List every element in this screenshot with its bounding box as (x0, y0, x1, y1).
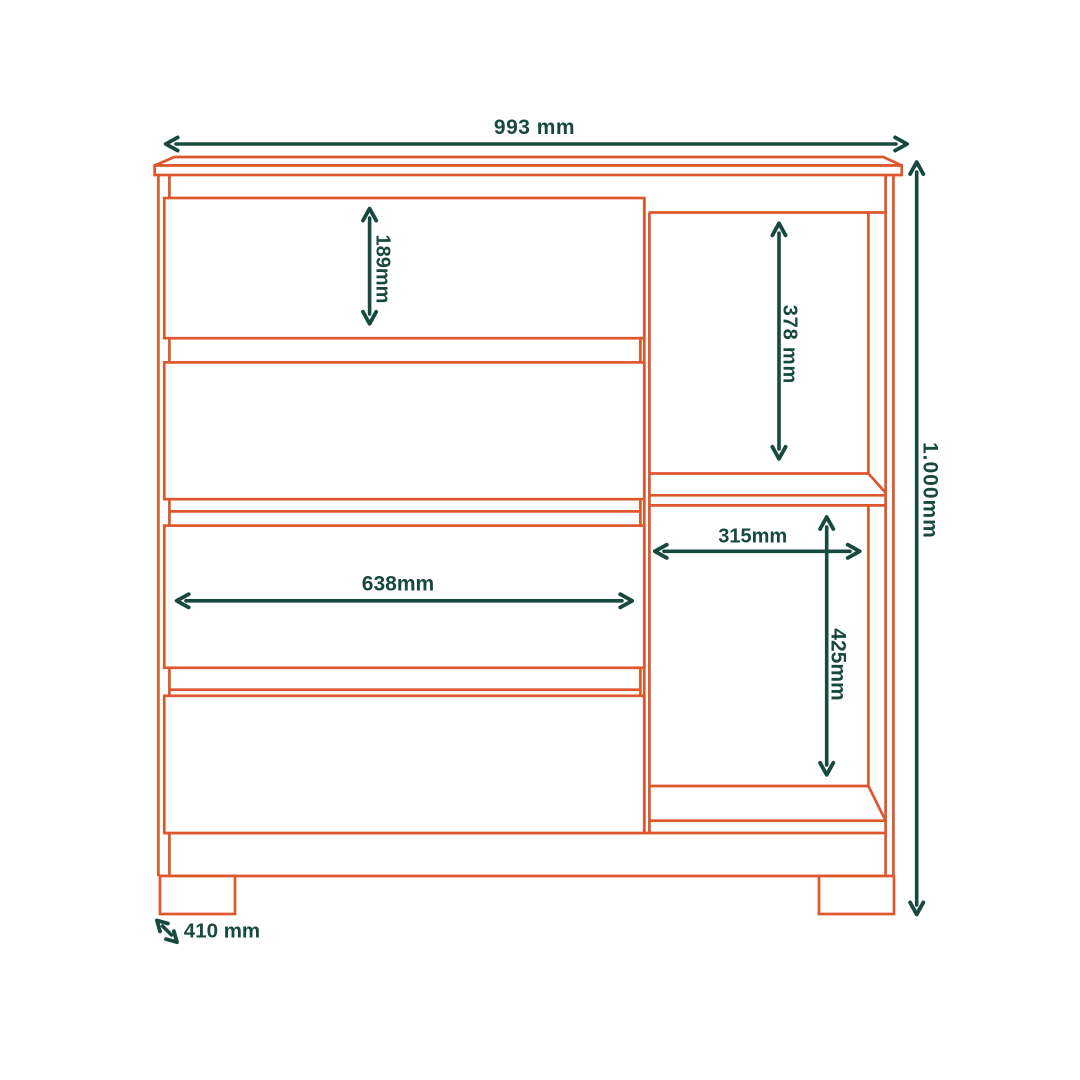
svg-text:410 mm: 410 mm (184, 920, 260, 943)
svg-text:993 mm: 993 mm (494, 116, 575, 139)
svg-text:189mm: 189mm (372, 235, 394, 304)
svg-text:638mm: 638mm (362, 573, 434, 596)
svg-text:378 mm: 378 mm (778, 305, 800, 384)
svg-text:425mm: 425mm (827, 628, 850, 700)
svg-text:1.000mm: 1.000mm (919, 442, 942, 539)
svg-text:315mm: 315mm (718, 525, 787, 547)
